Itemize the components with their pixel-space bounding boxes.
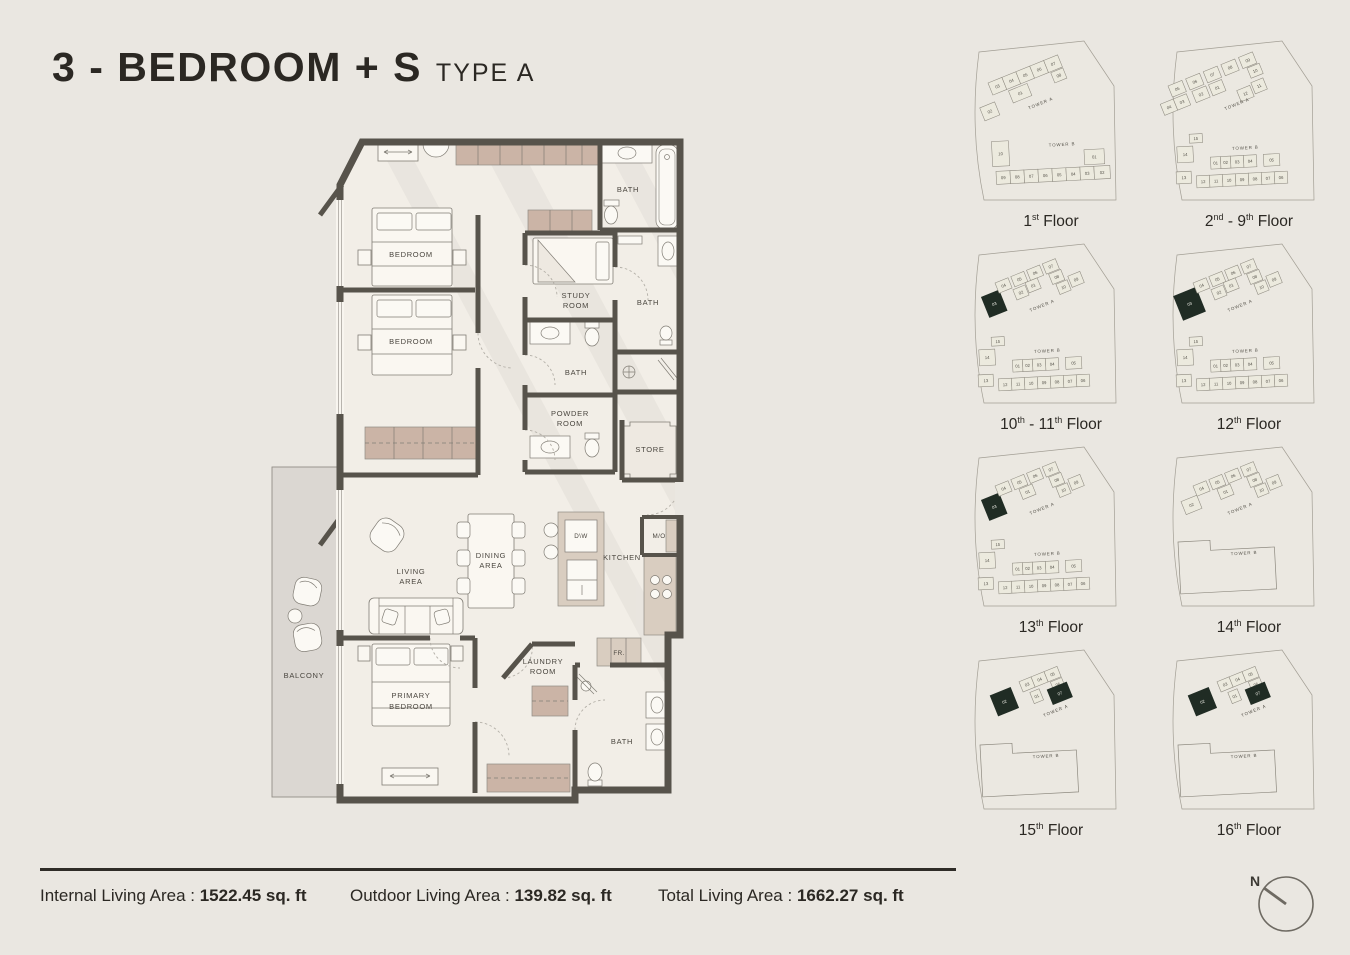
stat-internal-value: 1522.45 sq. ft	[200, 886, 307, 905]
label-laundry-1: LAUNDRY	[523, 657, 564, 666]
label-dw: D\W	[574, 533, 587, 540]
label-laundry-2: ROOM	[530, 667, 556, 676]
page-title: 3 - BEDROOM + S TYPE A	[52, 44, 535, 91]
floor-label-floor-2-9: 2nd - 9th Floor	[1154, 212, 1344, 231]
stat-outdoor-label: Outdoor Living Area :	[350, 886, 510, 905]
stat-outdoor-value: 139.82 sq. ft	[514, 886, 611, 905]
stat-total-value: 1662.27 sq. ft	[797, 886, 904, 905]
dresser-top	[378, 144, 418, 161]
bath-mid-fixtures	[530, 322, 599, 346]
label-living-1: LIVING	[397, 567, 426, 576]
label-living-2: AREA	[399, 577, 422, 586]
label-study-2: ROOM	[563, 301, 589, 310]
label-bath-right: BATH	[637, 298, 659, 307]
compass: N	[1238, 858, 1334, 946]
balcony	[272, 467, 340, 797]
keyplan-svg-floor-13: 030405060708011009TOWER A151413010203040…	[956, 442, 1146, 614]
label-bedroom-2: BEDROOM	[389, 337, 433, 346]
footer-divider	[40, 868, 956, 871]
keyplan-floor-15: 02030405060107TOWER ATOWER B15th Floor	[956, 645, 1146, 840]
label-dining-2: AREA	[479, 561, 502, 570]
laundry-furniture	[532, 686, 568, 716]
label-bath-bottom: BATH	[611, 737, 633, 746]
label-bedroom-1: BEDROOM	[389, 250, 433, 259]
floor-label-floor-16: 16th Floor	[1154, 821, 1344, 840]
study-bed	[533, 238, 613, 284]
label-store: STORE	[635, 445, 664, 454]
floor-label-floor-13: 13th Floor	[956, 618, 1146, 637]
label-bath-mid: BATH	[565, 368, 587, 377]
label-mo: M/O	[652, 533, 665, 540]
wardrobe-top	[456, 143, 600, 165]
keyplan-svg-floor-16: 02030405060107TOWER ATOWER B	[1154, 645, 1344, 817]
label-fr: FR.	[613, 650, 624, 657]
label-primary-2: BEDROOM	[389, 702, 433, 711]
keyplan-floor-13: 030405060708011009TOWER A151413010203040…	[956, 442, 1146, 637]
keyplan-svg-floor-15: 02030405060107TOWER ATOWER B	[956, 645, 1146, 817]
keyplan-floor-12: 03040506070802011009TOWER A1514130102030…	[1154, 239, 1344, 434]
stat-internal-label: Internal Living Area :	[40, 886, 195, 905]
keyplan-floor-10-11: 03040506070802011009TOWER A1514130102030…	[956, 239, 1146, 434]
stat-outdoor-area: Outdoor Living Area : 139.82 sq. ft	[350, 886, 612, 906]
label-primary-1: PRIMARY	[392, 691, 431, 700]
keyplan-floor-16: 02030405060107TOWER ATOWER B16th Floor	[1154, 645, 1344, 840]
primary-bed	[358, 644, 463, 726]
compass-needle	[1264, 888, 1286, 904]
keyplan-floor-2-9: 050607080910040302011211TOWER A151413010…	[1154, 36, 1344, 231]
floor-label-floor-15: 15th Floor	[956, 821, 1146, 840]
compass-n-label: N	[1250, 873, 1260, 889]
keyplan-svg-floor-14: 020405060708011009TOWER ATOWER B	[1154, 442, 1344, 614]
keyplan-grid: 0304050607080102TOWER A10010908070605040…	[956, 36, 1346, 841]
label-powder-1: POWDER	[551, 409, 589, 418]
main-floorplan: BATH BEDROOM BEDROOM STUDY ROOM BATH BAT…	[270, 130, 700, 820]
title-main: 3 - BEDROOM + S	[52, 44, 422, 91]
keyplan-floor-14: 020405060708011009TOWER ATOWER B14th Flo…	[1154, 442, 1344, 637]
stat-total-label: Total Living Area :	[658, 886, 792, 905]
floorplan-page: 3 - BEDROOM + S TYPE A	[0, 0, 1350, 955]
title-suffix: TYPE A	[436, 59, 536, 88]
label-balcony: BALCONY	[284, 671, 325, 680]
label-kitchen: KITCHEN	[603, 553, 641, 562]
label-powder-2: ROOM	[557, 419, 583, 428]
label-bath-top: BATH	[617, 185, 639, 194]
floor-label-floor-14: 14th Floor	[1154, 618, 1344, 637]
stat-internal-area: Internal Living Area : 1522.45 sq. ft	[40, 886, 307, 906]
keyplan-svg-floor-2-9: 050607080910040302011211TOWER A151413010…	[1154, 36, 1344, 208]
keyplan-svg-floor-12: 03040506070802011009TOWER A1514130102030…	[1154, 239, 1344, 411]
keyplan-svg-floor-10-11: 03040506070802011009TOWER A1514130102030…	[956, 239, 1146, 411]
powder-fixtures	[530, 433, 599, 458]
floor-label-floor-10-11: 10th - 11th Floor	[956, 415, 1146, 434]
closet-study	[528, 210, 592, 233]
label-study-1: STUDY	[562, 291, 591, 300]
label-dining-1: DINING	[476, 551, 506, 560]
stat-total-area: Total Living Area : 1662.27 sq. ft	[658, 886, 904, 906]
floor-label-floor-12: 12th Floor	[1154, 415, 1344, 434]
floor-label-floor-1: 1st Floor	[956, 212, 1146, 231]
keyplan-floor-1: 0304050607080102TOWER A10010908070605040…	[956, 36, 1146, 231]
keyplan-svg-floor-1: 0304050607080102TOWER A10010908070605040…	[956, 36, 1146, 208]
